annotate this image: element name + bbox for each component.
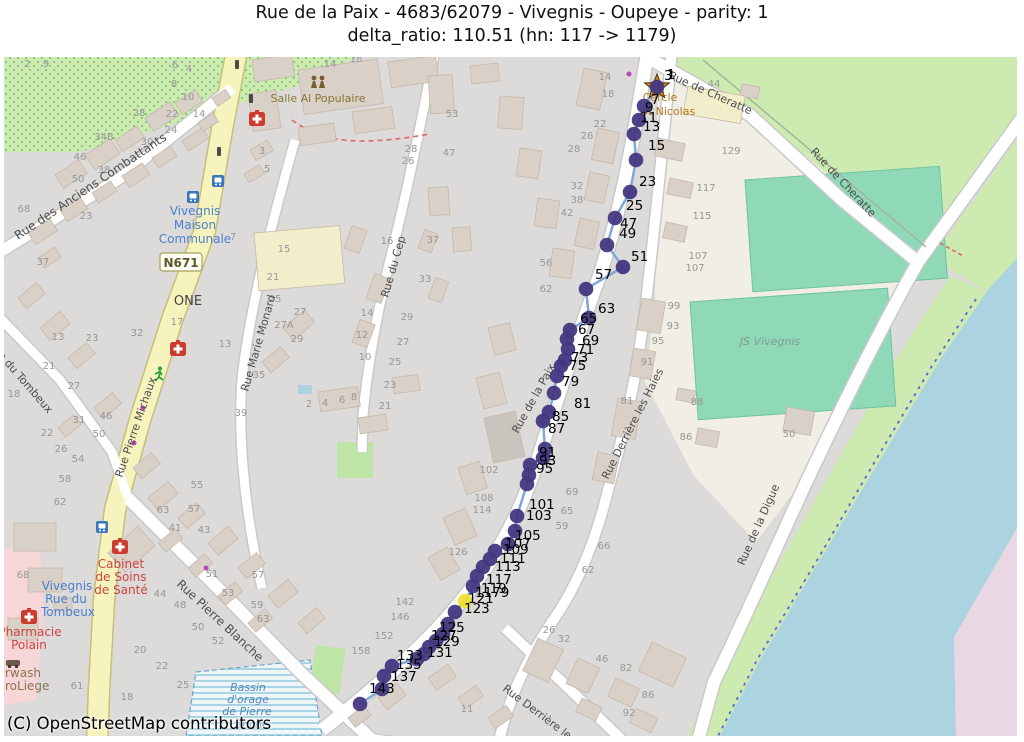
route-point-label: 57 — [595, 267, 612, 283]
house-number: 50 — [93, 429, 106, 440]
house-number: 50 — [783, 429, 796, 440]
house-number: 54 — [72, 454, 85, 465]
house-number: 9 — [43, 59, 49, 70]
house-number: 14 — [599, 72, 612, 83]
house-number: 42 — [561, 208, 574, 219]
traffic-light-icon — [217, 147, 221, 156]
house-number: 18 — [602, 89, 615, 100]
building — [298, 608, 325, 634]
house-number: 23 — [80, 211, 93, 222]
route-point-label: 131 — [427, 645, 453, 661]
house-number: 37 — [37, 257, 50, 268]
title-line-2: delta_ratio: 110.51 (hn: 117 -> 1179) — [0, 25, 1024, 48]
house-number: 24 — [165, 125, 178, 136]
building — [18, 283, 45, 309]
house-number: 46 — [74, 152, 87, 163]
building — [549, 248, 575, 279]
house-number: 41 — [169, 523, 182, 534]
house-number: 61 — [71, 681, 84, 692]
building — [452, 227, 472, 252]
house-number: 114 — [472, 505, 491, 516]
traffic-light-icon — [235, 60, 239, 69]
house-number: 65 — [561, 506, 574, 517]
route-point-label: 87 — [548, 421, 565, 437]
route-point — [547, 386, 562, 401]
house-number: 93 — [667, 321, 680, 332]
house-number: 126 — [448, 547, 467, 558]
route-point — [520, 477, 535, 492]
house-number: 29 — [291, 334, 304, 345]
house-number: 4 — [186, 64, 192, 75]
building — [344, 225, 367, 253]
house-number: 4 — [322, 398, 328, 409]
house-number: 68 — [18, 204, 31, 215]
building — [68, 343, 95, 369]
house-number: 31 — [73, 415, 86, 426]
house-number: 26 — [581, 131, 594, 142]
house-number: 58 — [59, 474, 72, 485]
route-point — [627, 127, 642, 142]
medical-icon — [249, 110, 265, 126]
house-number: 62 — [54, 497, 67, 508]
house-number: 39 — [235, 408, 248, 419]
house-number: 27 — [68, 381, 81, 392]
building — [298, 123, 336, 146]
route-point-label: 51 — [631, 249, 648, 265]
poi-label: de Soins — [96, 570, 147, 584]
poi-label: Vivegnis — [170, 204, 221, 218]
house-number: 28 — [133, 108, 146, 119]
house-number: 23 — [384, 380, 397, 391]
building — [428, 664, 456, 690]
house-number: 33 — [419, 274, 432, 285]
house-number: 27 — [294, 307, 307, 318]
house-number: 62 — [540, 284, 553, 295]
route-point-label: 137 — [391, 669, 417, 685]
house-number: 57 — [188, 504, 201, 515]
house-number: 86 — [642, 690, 655, 701]
house-number: 46 — [100, 411, 113, 422]
pharmacy-icon — [21, 608, 37, 624]
poi-label: Communale — [159, 232, 231, 246]
house-number: 63 — [157, 505, 170, 516]
figure-title: Rue de la Paix - 4683/62079 - Vivegnis -… — [0, 2, 1024, 48]
house-number: 32 — [131, 328, 144, 339]
house-number: 21 — [43, 361, 56, 372]
attribution: (C) OpenStreetMap contributors — [7, 714, 271, 733]
building — [244, 165, 265, 183]
house-number: 26 — [402, 156, 415, 167]
house-number: 14 — [324, 59, 337, 70]
route-point-label: 79 — [562, 374, 579, 390]
building — [608, 678, 640, 707]
house-number: 23 — [86, 333, 99, 344]
building — [498, 96, 524, 130]
map-canvas: 282214243034B463850236837648102918143553… — [4, 57, 1017, 736]
route-point-label: 13 — [643, 119, 660, 135]
house-number: 11 — [461, 704, 474, 715]
house-number: 38 — [571, 195, 584, 206]
poi-label: Vivegnis — [42, 579, 93, 593]
route-point-label: 95 — [536, 461, 553, 477]
route-point-label: 103 — [526, 508, 552, 524]
house-number: 18 — [8, 389, 21, 400]
house-number: 21 — [379, 401, 392, 412]
house-number: 32 — [571, 181, 584, 192]
poi-label: rwash — [5, 666, 41, 680]
house-number: 82 — [620, 663, 633, 674]
building — [638, 642, 686, 687]
map: 282214243034B463850236837648102918143553… — [4, 57, 1017, 736]
building — [636, 298, 665, 334]
house-number: 44 — [154, 589, 167, 600]
route-point-label: 123 — [464, 601, 490, 617]
house-number: 43 — [198, 525, 211, 536]
poi-label: JS Vivegnis — [738, 335, 801, 348]
house-number: 46 — [596, 654, 609, 665]
house-number: 6 — [172, 60, 178, 71]
house-number: 142 — [395, 597, 414, 608]
poi-label: Salle Al Populaire — [270, 92, 365, 105]
house-number: 51 — [206, 569, 219, 580]
house-number: 14 — [193, 109, 206, 120]
poi-label: roLiege — [5, 679, 49, 693]
route-point — [629, 153, 644, 168]
building — [358, 414, 388, 434]
building — [488, 323, 516, 355]
house-number: 117 — [696, 183, 715, 194]
house-number: 27A — [274, 320, 294, 331]
house-number: 14 — [361, 308, 374, 319]
house-number: 22 — [156, 661, 169, 672]
building — [584, 172, 609, 204]
house-number: 34B — [94, 132, 114, 143]
house-number: 99 — [668, 301, 681, 312]
house-number: 21 — [267, 272, 280, 283]
house-number: 108 — [474, 493, 493, 504]
house-number: 29 — [401, 312, 414, 323]
house-number: 22 — [594, 119, 607, 130]
title-line-1: Rue de la Paix - 4683/62079 - Vivegnis -… — [0, 2, 1024, 25]
house-number: 102 — [479, 465, 498, 476]
house-number: 59 — [556, 521, 569, 532]
house-number: 92 — [623, 708, 636, 719]
house-number: 115 — [692, 211, 711, 222]
house-number: 2 — [24, 59, 30, 70]
house-number: 27 — [397, 337, 410, 348]
house-number: 68 — [17, 570, 30, 581]
house-number: 91 — [641, 357, 654, 368]
pond — [298, 385, 312, 394]
house-number: 52 — [212, 636, 225, 647]
house-number: 158 — [351, 646, 370, 657]
house-number: 55 — [191, 480, 204, 491]
route-point — [353, 697, 368, 712]
house-number: 10 — [182, 92, 195, 103]
route-point — [510, 509, 525, 524]
house-number: 13 — [52, 332, 65, 343]
house-number: 5 — [264, 164, 270, 175]
house-number: 6 — [339, 395, 345, 406]
building — [470, 63, 500, 84]
house-number: 22 — [41, 428, 54, 439]
house-number: 8 — [171, 79, 177, 90]
house-number: 152 — [374, 631, 393, 642]
house-number: 32 — [558, 634, 571, 645]
house-number: 95 — [652, 336, 665, 347]
house-number: 53 — [446, 109, 459, 120]
route-point-label: 81 — [574, 396, 591, 412]
route-point-label: 75 — [569, 358, 586, 374]
building — [476, 372, 507, 409]
house-number: 88 — [691, 397, 704, 408]
house-number: 28 — [405, 144, 418, 155]
house-number: 47 — [443, 148, 456, 159]
route-point — [579, 282, 594, 297]
house-number: 28 — [568, 144, 581, 155]
house-number: 8 — [351, 392, 357, 403]
house-number: 81 — [621, 396, 634, 407]
route-point-label: 23 — [639, 174, 656, 190]
route-point-label: 25 — [626, 198, 643, 214]
first-aid-icon — [112, 538, 128, 554]
poi-label: Cabinet — [98, 557, 145, 571]
house-number: 26 — [55, 444, 68, 455]
house-number: 129 — [721, 146, 740, 157]
house-number: 69 — [566, 487, 579, 498]
house-number: 86 — [680, 432, 693, 443]
poi-label: Maison — [174, 218, 216, 232]
house-number: 3 — [259, 146, 265, 157]
building — [574, 218, 599, 250]
route-point — [600, 238, 615, 253]
poi-label: Polain — [11, 638, 47, 652]
house-number: 48 — [174, 600, 187, 611]
house-number: 18 — [350, 57, 363, 65]
house-number: 13 — [219, 339, 232, 350]
route-point-label: 143 — [369, 681, 395, 697]
house-number: 2 — [306, 399, 312, 410]
building — [695, 428, 719, 448]
poi-label: de Santé — [94, 583, 147, 597]
house-number: 20 — [134, 645, 147, 656]
house-number: 66 — [598, 541, 611, 552]
poi-label: Pharmacie — [4, 625, 62, 639]
building — [534, 198, 560, 229]
building — [352, 106, 395, 133]
road-shield-label: N671 — [163, 256, 198, 270]
house-number: 146 — [390, 612, 409, 623]
route-point-label: 15 — [648, 138, 665, 154]
building — [208, 526, 238, 555]
route-point-label: 49 — [619, 226, 636, 242]
shop-icon — [627, 72, 632, 77]
building — [516, 148, 542, 179]
house-number: 50 — [192, 622, 205, 633]
house-number: 17 — [171, 317, 184, 328]
house-number: 16 — [381, 236, 394, 247]
bus-stop-icon — [187, 191, 199, 203]
house-number: 10 — [359, 352, 372, 363]
route-point-label: 63 — [598, 301, 615, 317]
poi-label: Tombeux — [40, 605, 95, 619]
traffic-light-icon — [249, 94, 253, 103]
route-point-label: 1 — [667, 67, 676, 83]
house-number: 63 — [257, 614, 270, 625]
house-number: 59 — [251, 600, 264, 611]
poi-label: Rue du — [45, 592, 87, 606]
house-number: 15 — [278, 244, 291, 255]
house-number: 22 — [166, 109, 179, 120]
house-number: 25 — [389, 357, 402, 368]
bus-stop-icon — [96, 521, 108, 533]
house-number: 53 — [222, 588, 235, 599]
doctor-icon — [170, 340, 186, 356]
building — [428, 74, 455, 114]
house-number: 107 — [685, 263, 704, 274]
house-number: 26 — [543, 625, 556, 636]
building — [591, 128, 619, 164]
building — [262, 347, 289, 373]
building — [428, 187, 450, 216]
route-point — [616, 260, 631, 275]
bus-stop-icon — [212, 175, 224, 187]
poi-label: ONE — [174, 294, 202, 309]
house-number: 25 — [177, 680, 190, 691]
building — [14, 523, 56, 551]
house-number: 56 — [540, 258, 553, 269]
house-number: 37 — [427, 235, 440, 246]
house-number: 107 — [688, 251, 707, 262]
house-number: 62 — [582, 565, 595, 576]
house-number: 57 — [252, 570, 265, 581]
building — [268, 579, 298, 608]
house-number: 12 — [356, 330, 369, 341]
house-number: 18 — [121, 692, 134, 703]
